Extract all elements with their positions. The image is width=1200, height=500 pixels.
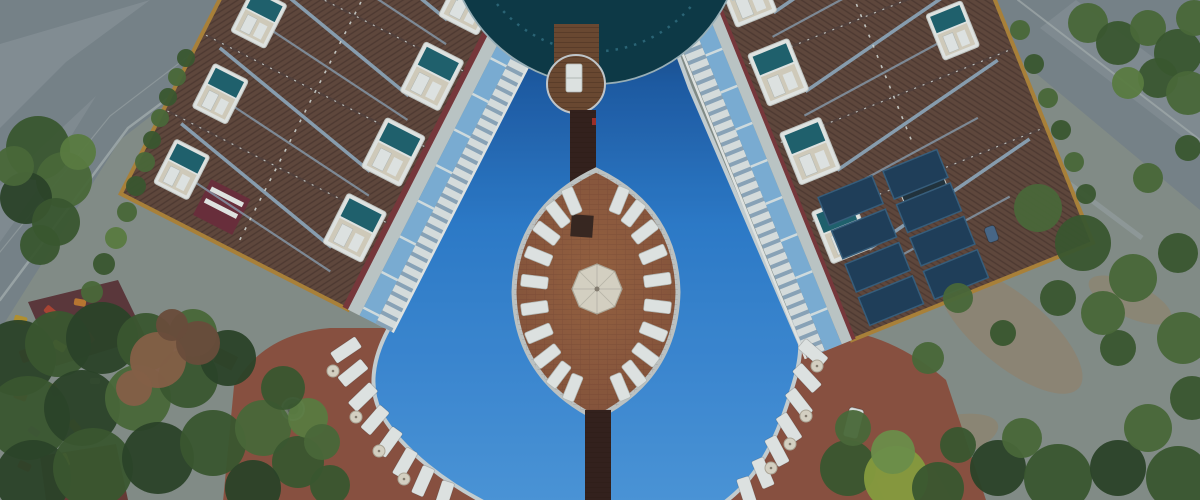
- aerial-photo: [0, 0, 1200, 500]
- photo-cast-overlay: [0, 0, 1200, 500]
- scene-svg: [0, 0, 1200, 500]
